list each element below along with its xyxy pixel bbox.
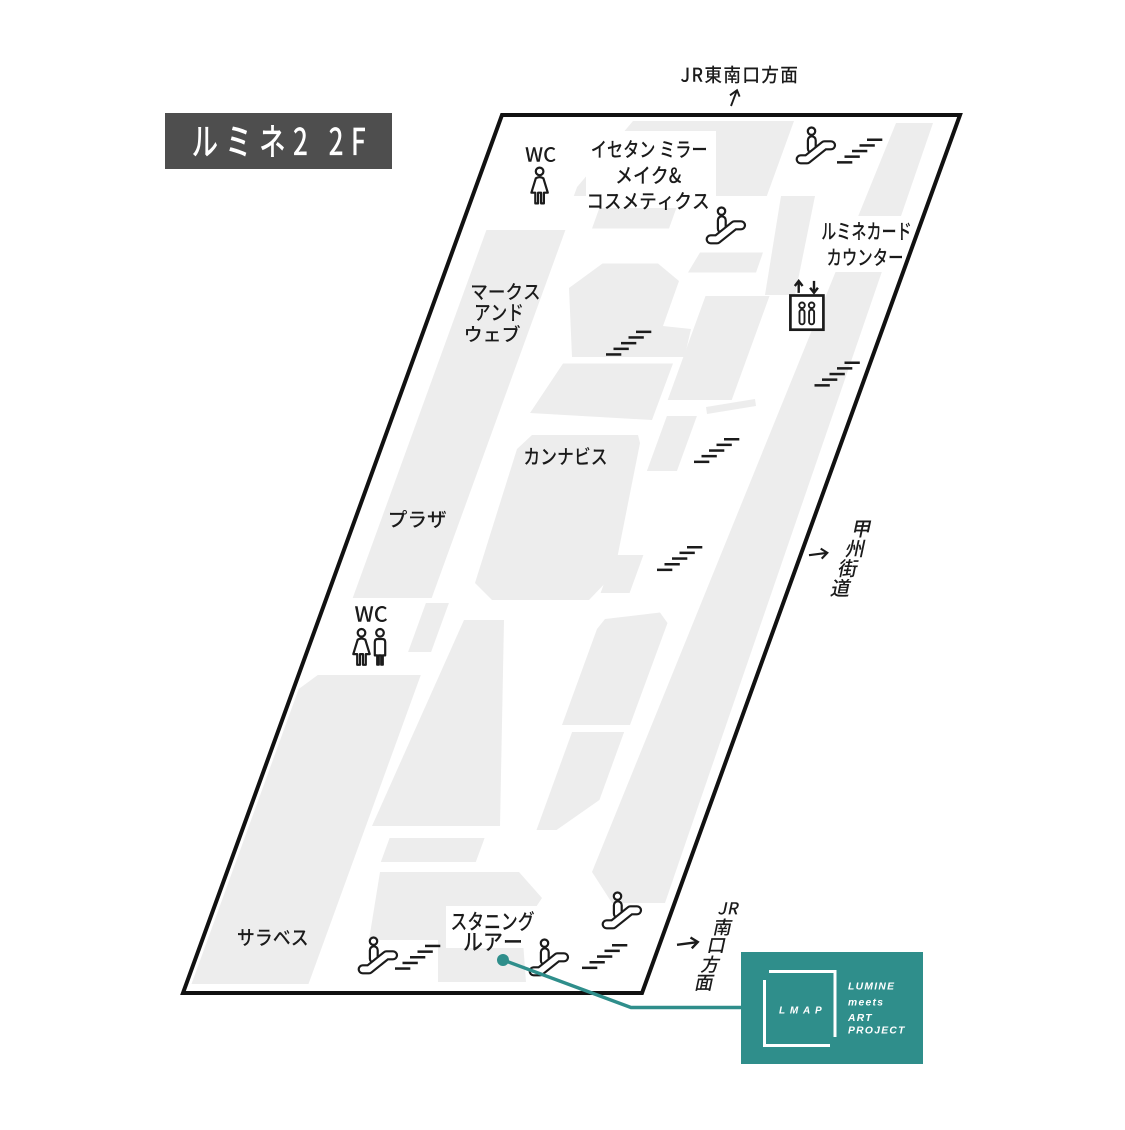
svg-text:LUMINE: LUMINE: [848, 982, 895, 993]
svg-text:PROJECT: PROJECT: [848, 1026, 906, 1037]
svg-text:LMAP: LMAP: [779, 1006, 827, 1017]
svg-text:meets: meets: [848, 998, 884, 1009]
svg-text:ART: ART: [847, 1013, 873, 1024]
